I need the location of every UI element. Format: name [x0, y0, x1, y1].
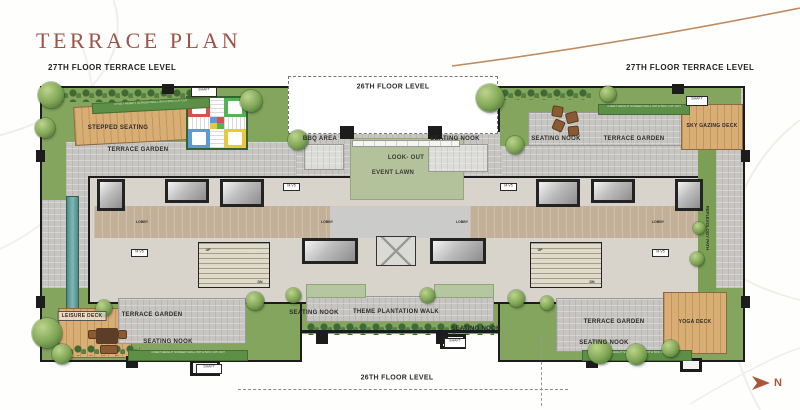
service-shaft: [376, 236, 416, 266]
area-label-seating-nook-tr: SEATING NOOK: [531, 136, 581, 142]
area-label-look-out: LOOK- OUT: [388, 155, 424, 161]
screen-wall-note: 4 FEET HEIGHT SCREEN WALL WITH 50% CUT-O…: [128, 350, 248, 361]
vent-shaft-tag: M-V5: [131, 249, 148, 257]
area-label-seating-nook-bl: SEATING NOOK: [143, 339, 193, 345]
shaft-tag: SHAFT: [191, 87, 217, 97]
lobby-label: LOBBY: [321, 220, 333, 224]
area-label-theme-plantation-walk: THEME PLANTATION WALK: [353, 309, 439, 315]
planter-bed: [434, 284, 494, 298]
stairs-dn-label: DN: [589, 280, 594, 284]
vent-shaft-tag: M-V5: [500, 183, 517, 191]
shaft-tag: SHAFT: [444, 338, 466, 348]
lobby-label: LOBBY: [652, 220, 664, 224]
area-label-event-lawn: EVENT LAWN: [372, 170, 414, 176]
area-label-seating-nook-bc: SEATING NOOK: [289, 310, 339, 316]
lobby-label: LOBBY: [136, 220, 148, 224]
floor-label-right: 27TH FLOOR TERRACE LEVEL: [626, 63, 754, 72]
vent-shaft-tag: M-V5: [652, 249, 669, 257]
area-label-reflexology-path: REFLEXOLOGY PATH: [705, 206, 709, 250]
seating-nook-tiles: [428, 144, 488, 172]
stairs-up-label: UP: [538, 248, 543, 252]
area-label-terrace-garden-tr: TERRACE GARDEN: [604, 136, 665, 142]
compass: N: [752, 376, 782, 390]
lift-shaft: [675, 179, 703, 211]
stairs-dn-label: DN: [257, 280, 262, 284]
corridor-mid-segment: [330, 206, 470, 238]
area-label-stepped-seating: STEPPED SEATING: [88, 125, 148, 131]
area-label-leisure-deck: LEISURE DECK: [58, 311, 107, 321]
lift-shaft: [220, 179, 264, 207]
north-letter: N: [774, 377, 782, 389]
floor-label-left: 27TH FLOOR TERRACE LEVEL: [48, 63, 176, 72]
lift-shaft: [165, 179, 209, 203]
area-label-bbq: BBQ AREA: [303, 136, 337, 142]
lift-shaft: [302, 238, 358, 264]
upper-floor-label-bottom: 26TH FLOOR LEVEL: [361, 375, 434, 382]
lift-shaft: [591, 179, 635, 203]
upper-floor-label-top: 26TH FLOOR LEVEL: [357, 84, 430, 91]
left-edge-garden: [42, 140, 66, 200]
area-label-terrace-garden-br: TERRACE GARDEN: [584, 319, 645, 325]
area-label-sky-gazing-deck: SKY GAZING DECK: [686, 123, 737, 129]
area-label-seating-nook-bc2: SEATING NOOK: [451, 326, 501, 332]
vent-shaft-tag: M-V5: [283, 183, 300, 191]
screen-wall-note: 4 FEET HEIGHT SCREEN WALL WITH 50% CUT-O…: [598, 104, 690, 115]
lift-shaft: [97, 179, 125, 211]
lobby-label: LOBBY: [456, 220, 468, 224]
upper-floor-outline-bottom: [238, 389, 568, 390]
north-arrow-icon: [752, 376, 770, 390]
planter-bed: [306, 284, 366, 298]
shrub-row: [500, 88, 592, 100]
stairs-up-label: UP: [206, 248, 211, 252]
area-label-seating-nook-tc: SEATING NOOK: [430, 136, 480, 142]
shaft-tag: SHAFT: [686, 96, 708, 106]
shaft-tag: SHAFT: [196, 364, 222, 374]
bbq-counter: [304, 144, 344, 170]
lift-shaft: [536, 179, 580, 207]
area-label-terrace-garden-tl: TERRACE GARDEN: [108, 147, 169, 153]
page-title: TERRACE PLAN: [36, 28, 241, 54]
lift-shaft: [430, 238, 486, 264]
floor-outline-dash-vertical: [541, 336, 542, 406]
area-label-terrace-garden-bl: TERRACE GARDEN: [122, 312, 183, 318]
area-label-yoga-deck: YOGA DECK: [679, 319, 712, 325]
area-label-seating-nook-br: SEATING NOOK: [579, 340, 629, 346]
bottom-left-paving: [118, 298, 246, 344]
